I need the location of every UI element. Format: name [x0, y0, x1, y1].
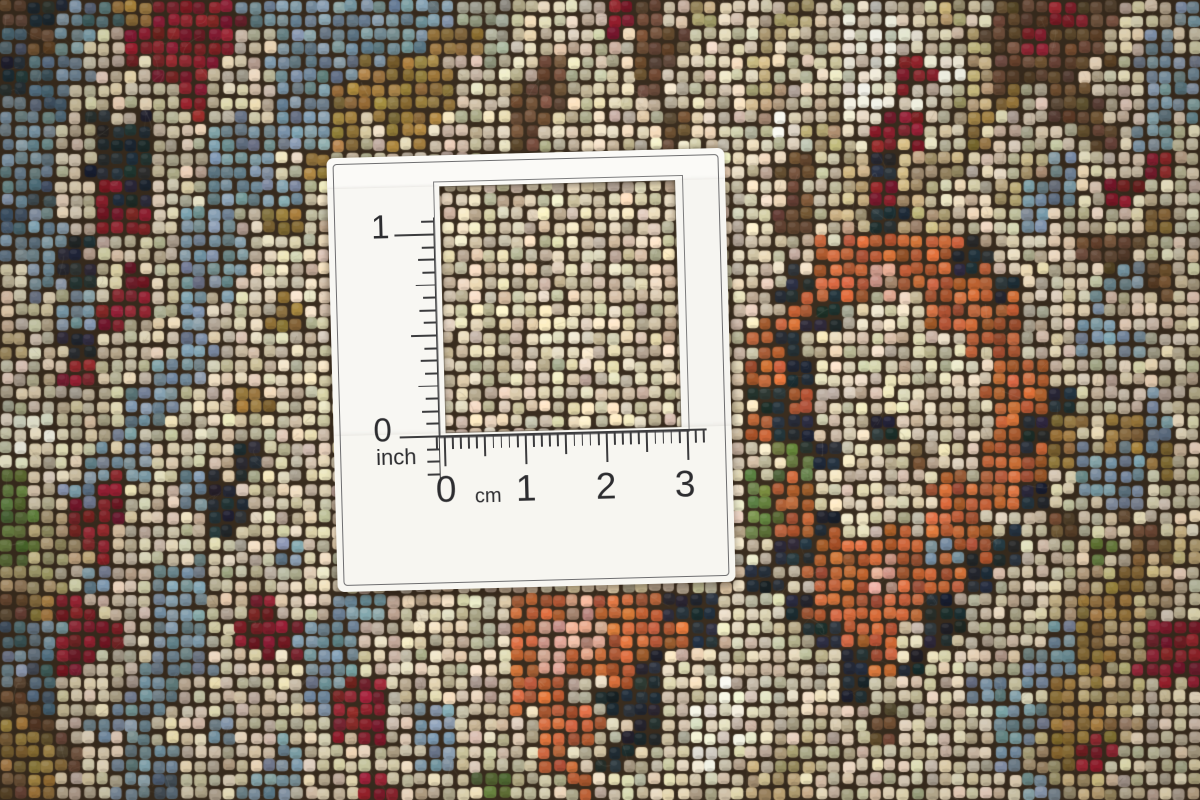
cm-tick: [557, 433, 559, 446]
cm-tick: [516, 435, 518, 448]
inch-tick: [426, 398, 439, 400]
inch-tick: [424, 322, 437, 324]
cm-label-1: 1: [515, 469, 537, 507]
cm-tick: [630, 432, 632, 445]
inch-tick: [427, 448, 440, 450]
cm-tick: [695, 430, 697, 443]
inch-label-1: 1: [371, 210, 390, 243]
cm-tick: [597, 432, 599, 445]
cm-tick: [589, 433, 591, 446]
cm-tick: [549, 434, 551, 447]
inch-tick: [422, 271, 435, 273]
inch-label-0: 0: [373, 413, 392, 446]
inch-tick: [421, 221, 434, 223]
cm-tick: [638, 431, 640, 444]
cm-tick: [614, 432, 616, 445]
cm-tick: [581, 433, 583, 446]
cm-tick: [541, 434, 543, 447]
cm-tick: [662, 431, 664, 444]
cm-tick: [460, 436, 462, 449]
cm-unit-label: cm: [475, 486, 502, 507]
inch-tick: [427, 461, 440, 463]
cm-tick: [468, 436, 470, 449]
inch-tick: [424, 347, 437, 349]
cm-tick: [492, 435, 494, 448]
cm-tick: [622, 432, 624, 445]
cm-tick: [533, 434, 535, 447]
cm-tick: [452, 436, 454, 449]
inch-tick: [422, 246, 435, 248]
cm-tick: [500, 435, 502, 448]
cm-tick: [573, 433, 575, 446]
cm-tick: [670, 431, 672, 444]
inch-tick: [425, 372, 438, 374]
cm-label-0: 0: [435, 471, 457, 509]
cm-tick: [508, 435, 510, 448]
cm-label-2: 2: [595, 467, 617, 505]
cm-tick: [436, 437, 438, 450]
cm-tick: [654, 431, 656, 444]
cm-label-3: 3: [674, 465, 696, 503]
cm-tick: [703, 430, 705, 443]
cm-tick: [476, 436, 478, 449]
cm-tick: [678, 430, 680, 443]
inch-tick: [426, 423, 439, 425]
inch-tick: [423, 297, 436, 299]
rug-photo-scene: 1 0 inch 0 cm 1 2 3: [0, 0, 1200, 800]
cutout-window: [439, 180, 681, 433]
measuring-card: 1 0 inch 0 cm 1 2 3: [326, 148, 735, 592]
inch-unit-label: inch: [376, 446, 417, 469]
